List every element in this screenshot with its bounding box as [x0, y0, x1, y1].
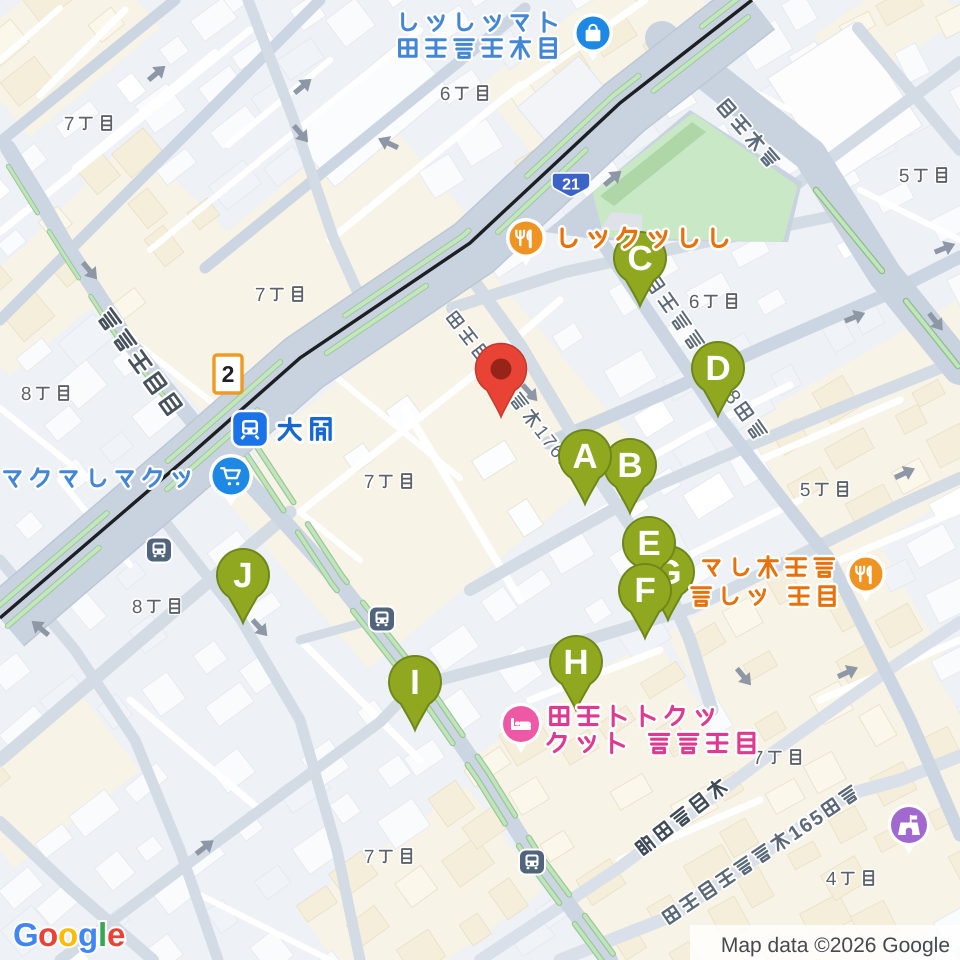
svg-text:8: 8 [132, 597, 143, 618]
svg-text:7: 7 [64, 114, 75, 135]
svg-text:2: 2 [222, 361, 235, 387]
svg-text:A: A [572, 437, 597, 476]
svg-text:l: l [98, 916, 107, 953]
svg-text:J: J [233, 556, 252, 595]
svg-text:6: 6 [440, 84, 451, 105]
svg-text:D: D [705, 349, 730, 388]
svg-text:7: 7 [364, 847, 375, 868]
svg-text:e: e [107, 916, 125, 953]
svg-text:G: G [13, 916, 39, 953]
svg-text:7: 7 [364, 472, 375, 493]
svg-text:7: 7 [255, 285, 266, 306]
svg-text:g: g [78, 916, 98, 953]
svg-text:o: o [58, 916, 78, 953]
svg-text:I: I [410, 663, 420, 702]
svg-text:E: E [637, 524, 660, 563]
svg-text:4: 4 [826, 869, 837, 890]
svg-text:H: H [563, 643, 588, 682]
svg-text:o: o [38, 916, 58, 953]
svg-text:21: 21 [562, 177, 580, 194]
svg-text:8: 8 [21, 384, 32, 405]
svg-text:B: B [617, 446, 642, 485]
svg-text:5: 5 [800, 480, 811, 501]
svg-text:6: 6 [689, 292, 700, 313]
svg-text:5: 5 [899, 166, 910, 187]
svg-text:Map data ©2026 Google: Map data ©2026 Google [721, 934, 950, 957]
svg-text:F: F [634, 571, 655, 610]
